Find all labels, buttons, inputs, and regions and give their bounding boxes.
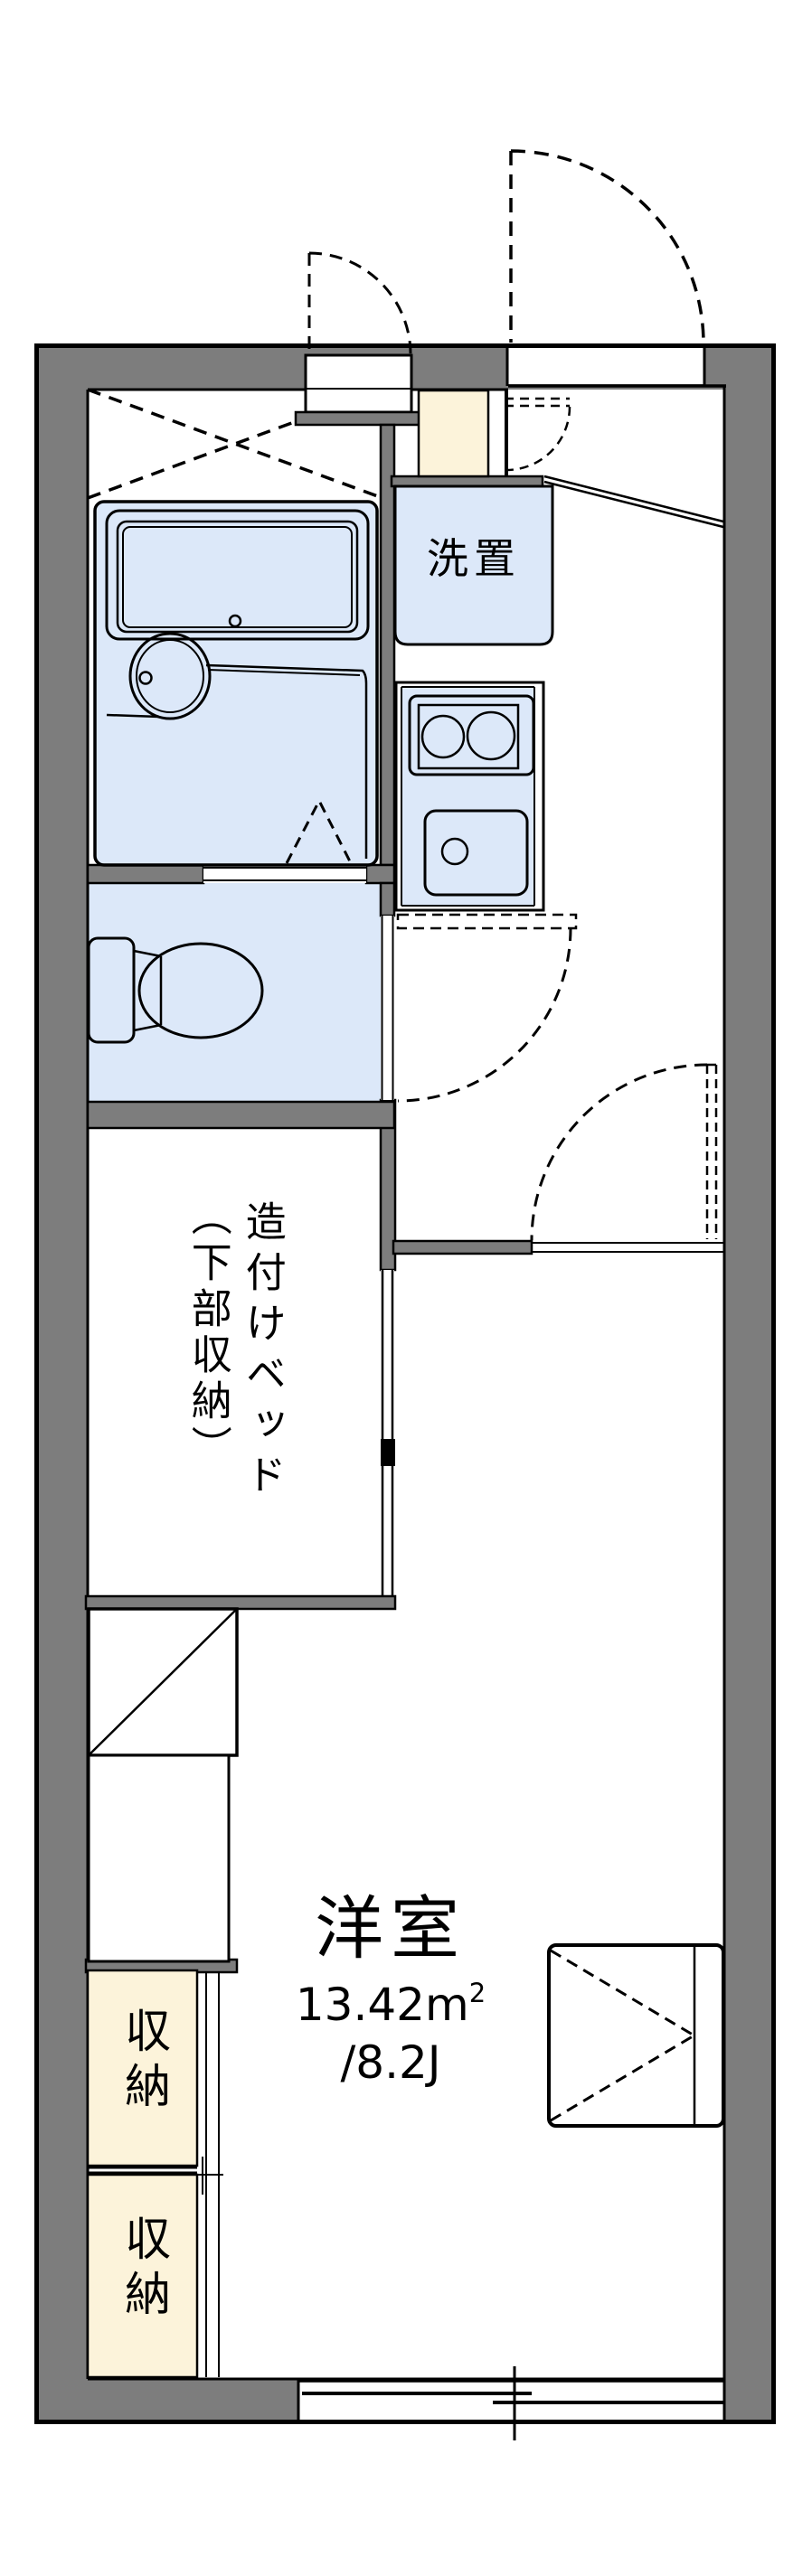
kitchen-unit — [396, 682, 576, 1101]
sink-icon — [425, 811, 527, 895]
builtin-bed-label-line1: 造付けベッド — [239, 1200, 286, 1504]
overhead-cabinet-icon — [398, 915, 576, 928]
floorplan-canvas: 洗置 造付けベッド （下部収納） 収納 収納 洋室 13.42m2 /8.2J — [0, 0, 812, 2576]
bed-room-fixtures — [89, 1609, 237, 1961]
counter-diagonal — [544, 476, 723, 527]
toilet-icon — [89, 938, 262, 1042]
partition-handle-icon — [381, 1439, 395, 1466]
room-name-label: 洋室 — [246, 1889, 535, 1968]
bathroom-unit — [95, 502, 377, 865]
laundry-label: 洗置 — [395, 535, 552, 583]
bathroom-alcove — [296, 355, 425, 425]
entrance-area — [309, 151, 723, 527]
interior-door-swing-icon — [505, 399, 570, 470]
room-door — [532, 1065, 716, 1240]
entrance-door-swing-icon — [511, 151, 703, 343]
entrance-opening — [508, 348, 705, 384]
upper-door-swing-icon — [309, 253, 411, 354]
storage-upper-label: 収納 — [116, 2007, 169, 2117]
room-area-value: 13.42m — [296, 1979, 469, 2031]
bay-window-unit — [549, 1945, 723, 2126]
builtin-bed-label-line2: （下部収納） — [184, 1195, 231, 1471]
room-area-superscript: 2 — [469, 1978, 486, 2008]
room-area-tatami-label: /8.2J — [246, 2037, 535, 2090]
lower-unit — [89, 1755, 229, 1961]
storage-lower-label: 収納 — [116, 2214, 169, 2325]
bath-kitchen-divider-wall — [381, 425, 394, 865]
entrance-step — [419, 390, 488, 476]
floorplan-drawing — [0, 0, 812, 2576]
stove-icon — [410, 696, 533, 775]
room-area-label: 13.42m2 — [246, 1979, 535, 2032]
washroom-door-swing-icon — [398, 928, 571, 1101]
